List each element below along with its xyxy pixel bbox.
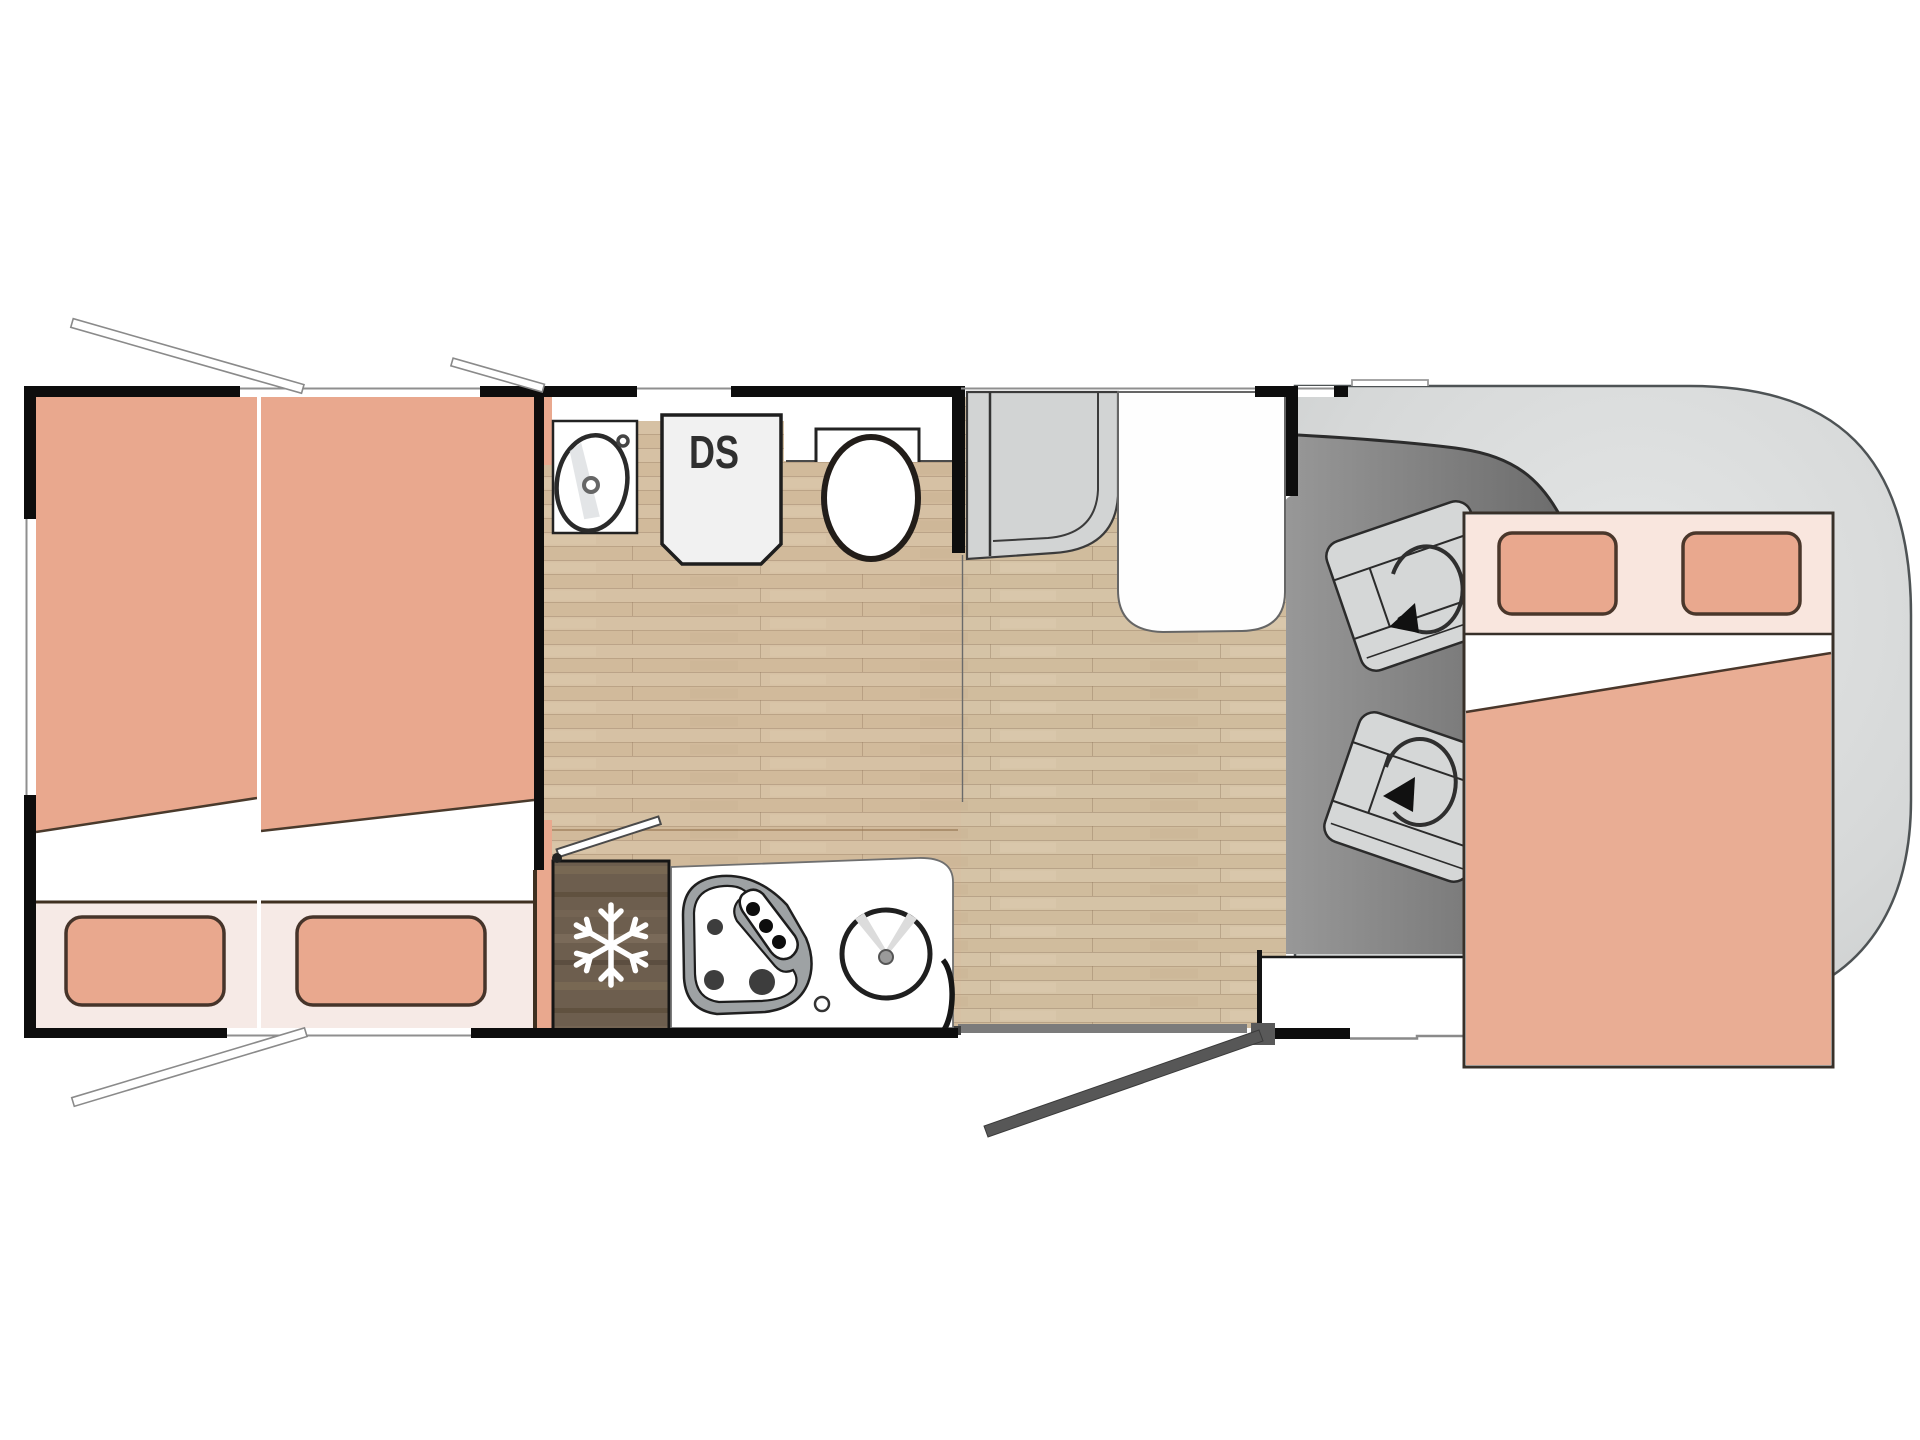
- svg-text:DS: DS: [689, 426, 739, 478]
